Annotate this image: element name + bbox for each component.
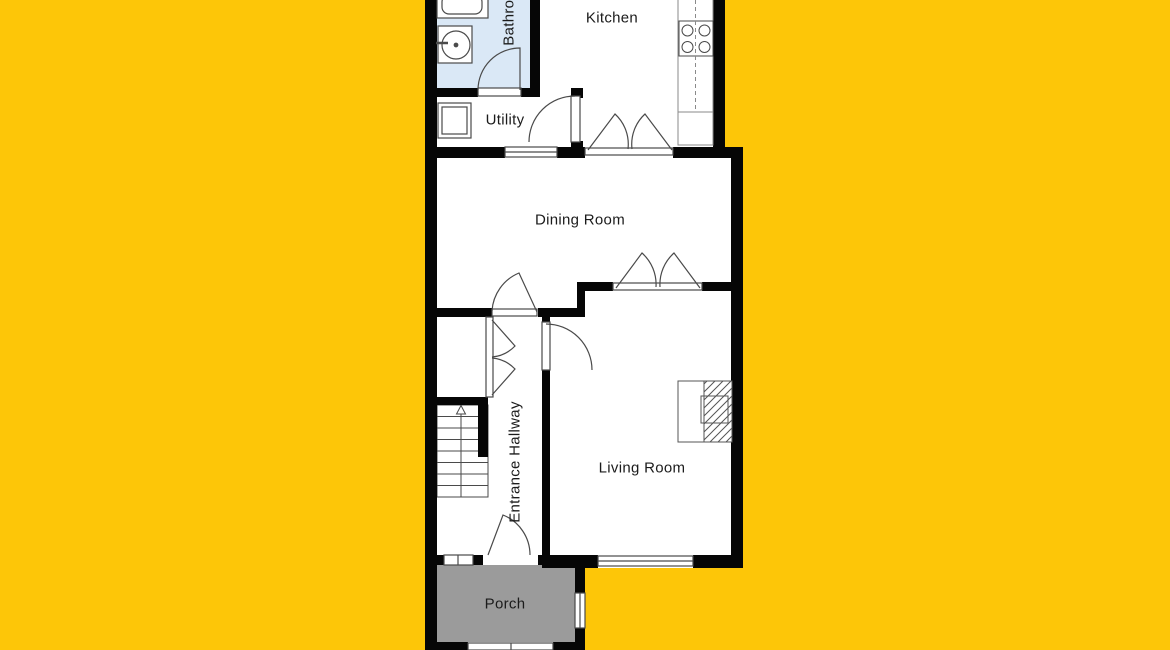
wall-dining-right bbox=[731, 148, 743, 568]
bathtub-inner bbox=[442, 0, 482, 14]
label-porch: Porch bbox=[485, 595, 526, 612]
wall-porch-bottom-a bbox=[425, 642, 468, 650]
stove-burner bbox=[699, 42, 710, 53]
wall-step-connector bbox=[577, 282, 585, 317]
label-bathroom: Bathroom bbox=[500, 0, 517, 46]
wall-bath-bottom-left bbox=[425, 88, 478, 97]
wall-hallway-stub bbox=[542, 313, 550, 322]
wall-kitchen-bottom-b bbox=[557, 147, 585, 158]
door-opening-kitchen bbox=[585, 148, 673, 155]
label-utility: Utility bbox=[486, 111, 525, 128]
wall-front-b bbox=[473, 555, 483, 565]
basin-drain bbox=[454, 43, 458, 47]
door-opening-front bbox=[483, 556, 538, 564]
wall-kitchen-bottom-a bbox=[437, 147, 505, 158]
door-leaf-closet bbox=[486, 317, 493, 397]
stove-burner bbox=[682, 25, 693, 36]
wall-porch-bottom-b bbox=[553, 642, 585, 650]
door-opening-dining-living bbox=[613, 283, 702, 290]
wall-living-top-b bbox=[702, 282, 743, 291]
wall-hallway-living bbox=[542, 370, 550, 555]
stove-burner bbox=[682, 42, 693, 53]
wall-living-bottom-a bbox=[542, 555, 598, 568]
wall-front-a bbox=[437, 555, 444, 565]
wall-dining-bottom-a bbox=[425, 308, 492, 317]
label-living-room: Living Room bbox=[599, 459, 686, 476]
door-leaf-utility bbox=[571, 96, 580, 142]
door-leaf-hall-living bbox=[542, 322, 550, 370]
wall-stairs-right bbox=[478, 397, 488, 457]
floorplan: Bathroom Kitchen Utility Dining Room Ent… bbox=[0, 0, 1170, 650]
wall-porch-right-a bbox=[575, 565, 585, 593]
wall-living-bottom-b bbox=[693, 555, 743, 568]
wall-kitchen-right bbox=[713, 0, 725, 152]
utility-fixtures bbox=[438, 103, 471, 138]
label-kitchen: Kitchen bbox=[586, 9, 638, 26]
wall-front-c bbox=[538, 555, 542, 565]
label-dining-room: Dining Room bbox=[535, 211, 625, 228]
stove-burner bbox=[699, 25, 710, 36]
door-opening-bathroom bbox=[478, 88, 521, 96]
wall-outer-left bbox=[425, 0, 437, 650]
door-opening-dining-hall bbox=[492, 309, 537, 316]
wall-bath-bottom-right bbox=[521, 88, 540, 97]
fireplace bbox=[678, 381, 732, 442]
kitchen-counter bbox=[678, 0, 713, 145]
utility-appliance-icon bbox=[438, 103, 471, 138]
wall-bath-kitchen bbox=[530, 0, 540, 95]
label-entrance-hallway: Entrance Hallway bbox=[506, 401, 523, 523]
